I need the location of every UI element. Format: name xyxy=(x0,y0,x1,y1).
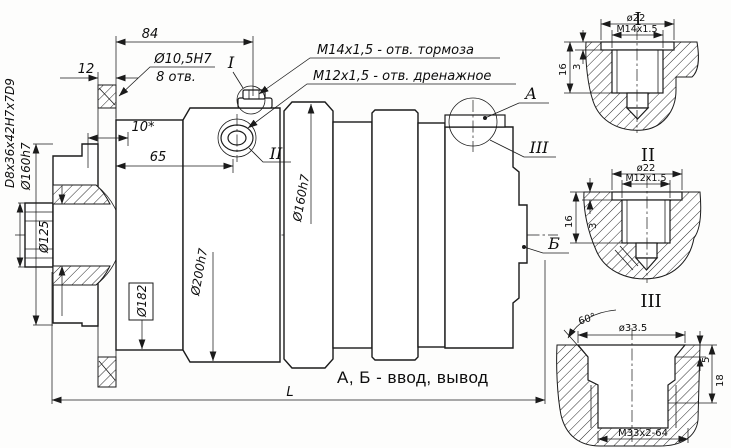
detail-i-d3-label: 3 xyxy=(572,64,583,70)
detail-iii-title: III xyxy=(640,291,661,312)
drawing-sheet: 84 12 10* 65 Ø10,5H7 8 отв. I II III M14… xyxy=(0,0,731,448)
port-b-label: Б xyxy=(547,234,560,253)
spline-label: D8x36x42H7x7D9 xyxy=(3,78,17,188)
detail-iii-dia-label: ø33.5 xyxy=(619,323,647,334)
port-a-boss xyxy=(445,115,505,127)
drain-callout-label: M12x1,5 - отв. дренажное xyxy=(313,69,491,84)
ref-i-leader xyxy=(233,72,243,88)
detail-iii-thread-label: M33x2-64 xyxy=(618,428,668,439)
dim-160l-label: Ø160h7 xyxy=(19,142,33,191)
port-a-callout: А xyxy=(483,84,549,120)
dim-65-label: 65 xyxy=(150,150,167,165)
detail-ii-d16-label: 16 xyxy=(564,215,575,228)
hub-section-top xyxy=(53,185,110,204)
ref-ii-label: II xyxy=(269,144,283,163)
detail-i-thread-label: M14x1.5 xyxy=(616,24,657,35)
detail-iii-d18-label: 18 xyxy=(715,374,726,387)
hydraulic-motor-drawing: 84 12 10* 65 Ø10,5H7 8 отв. I II III M14… xyxy=(0,0,731,448)
detail-ii-d3-label: 3 xyxy=(588,223,599,229)
body-sections xyxy=(116,102,527,368)
main-view: 84 12 10* 65 Ø10,5H7 8 отв. I II III M14… xyxy=(3,27,569,404)
section-g xyxy=(445,127,527,348)
dim-182-label: Ø182 xyxy=(135,285,149,318)
detail-ii: II ø22 M12x1.5 16 3 xyxy=(564,145,701,283)
hub xyxy=(53,144,98,326)
dim-l-label: L xyxy=(286,385,293,400)
ref-i-label: I xyxy=(227,53,235,72)
plug-brake xyxy=(238,90,272,108)
ref-iii-label: III xyxy=(529,138,550,157)
bolt-holes-callout: Ø10,5H7 8 отв. xyxy=(119,52,215,96)
section-f xyxy=(418,123,445,347)
port-b-callout: Б xyxy=(522,234,569,253)
flange-bottom-section xyxy=(98,357,116,387)
section-c xyxy=(284,102,333,368)
port-a-label: А xyxy=(524,84,537,103)
bolt-holes-count-label: 8 отв. xyxy=(156,70,196,85)
detail-i-d16-label: 16 xyxy=(558,63,569,76)
ports-note: А, Б - ввод, вывод xyxy=(337,368,488,387)
detail-iii-d5-label: 5 xyxy=(701,357,712,363)
section-e xyxy=(372,110,418,360)
hub-section-bottom xyxy=(53,266,110,285)
dim-84-label: 84 xyxy=(142,27,159,42)
brake-callout-label: M14x1,5 - отв. тормоза xyxy=(317,43,474,58)
bolt-holes-dia-label: Ø10,5H7 xyxy=(153,52,212,67)
detail-ii-thread-label: M12x1.5 xyxy=(625,173,666,184)
dim-12-label: 12 xyxy=(78,62,95,77)
detail-i-dia-label: ø22 xyxy=(627,13,646,24)
dim-125-label: Ø125 xyxy=(37,221,51,254)
detail-iii: III 60° ø33.5 5 18 M33x2-64 xyxy=(557,291,726,446)
detail-iii-angle-label: 60° xyxy=(577,312,597,328)
detail-i: I ø22 M14x1.5 16 3 xyxy=(558,9,698,133)
dim-10-label: 10* xyxy=(131,120,155,135)
section-d xyxy=(333,122,372,348)
